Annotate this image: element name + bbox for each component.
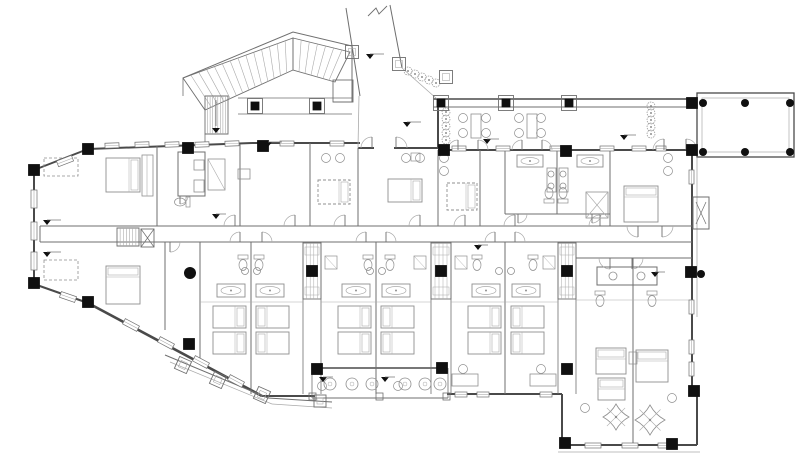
column: [83, 297, 94, 308]
plant-center: [445, 125, 447, 127]
window: [280, 141, 294, 146]
window: [195, 142, 209, 147]
bathtub-drain: [525, 290, 527, 292]
window: [31, 252, 37, 270]
plant-center: [445, 111, 447, 113]
window: [31, 222, 37, 240]
round-column: [786, 99, 794, 107]
round-column: [786, 148, 794, 156]
column: [436, 266, 447, 277]
window: [496, 146, 510, 151]
window: [540, 392, 552, 397]
window: [31, 190, 37, 208]
window: [585, 443, 601, 448]
plant-center: [650, 119, 652, 121]
column: [184, 339, 195, 350]
column: [437, 363, 448, 374]
plant-center: [650, 112, 652, 114]
floor-plan-page: [0, 0, 800, 470]
column: [560, 438, 571, 449]
medallion-center: [615, 416, 617, 418]
column: [29, 278, 40, 289]
bathtub-drain: [395, 290, 397, 292]
window: [600, 146, 614, 151]
bathtub-drain: [589, 160, 591, 162]
column: [562, 364, 573, 375]
column: [689, 386, 700, 397]
window: [452, 146, 466, 151]
medallion-center: [649, 419, 651, 421]
column: [686, 267, 697, 278]
round-column: [697, 270, 705, 278]
round-column: [741, 148, 749, 156]
floor-plan-drawing: [0, 0, 800, 470]
plant-center: [435, 82, 437, 84]
plant-center: [421, 76, 423, 78]
plant-center: [445, 132, 447, 134]
column-core: [437, 99, 445, 107]
plant-center: [428, 79, 430, 81]
column-core: [565, 99, 573, 107]
window: [225, 141, 239, 146]
column-core: [251, 102, 259, 110]
round-column: [699, 148, 707, 156]
bathtub-drain: [355, 290, 357, 292]
window: [632, 146, 646, 151]
plant-center: [650, 105, 652, 107]
column: [687, 98, 698, 109]
column-core: [313, 102, 321, 110]
column: [29, 165, 40, 176]
bathtub-drain: [529, 160, 531, 162]
window: [165, 142, 179, 147]
plant-center: [650, 126, 652, 128]
window: [135, 142, 149, 147]
circle-fixture: [184, 267, 196, 279]
window: [689, 340, 694, 354]
column: [667, 439, 678, 450]
window: [656, 146, 666, 151]
column: [561, 146, 572, 157]
plant-center: [407, 70, 409, 72]
window: [455, 392, 467, 397]
window: [689, 362, 694, 376]
bathtub-drain: [269, 290, 271, 292]
plant-center: [414, 73, 416, 75]
window: [689, 170, 694, 184]
column: [307, 266, 318, 277]
plant-center: [650, 133, 652, 135]
bathtub-drain: [230, 290, 232, 292]
column: [687, 145, 698, 156]
column: [83, 144, 94, 155]
plant-center: [445, 118, 447, 120]
column: [183, 143, 194, 154]
window: [689, 300, 694, 314]
round-column: [741, 99, 749, 107]
bathtub-drain: [485, 290, 487, 292]
round-column: [699, 99, 707, 107]
column: [562, 266, 573, 277]
window: [622, 443, 638, 448]
column-core: [502, 99, 510, 107]
column: [312, 364, 323, 375]
window: [477, 392, 489, 397]
window: [330, 141, 344, 146]
window: [105, 143, 119, 148]
plant-center: [445, 139, 447, 141]
column: [439, 145, 450, 156]
